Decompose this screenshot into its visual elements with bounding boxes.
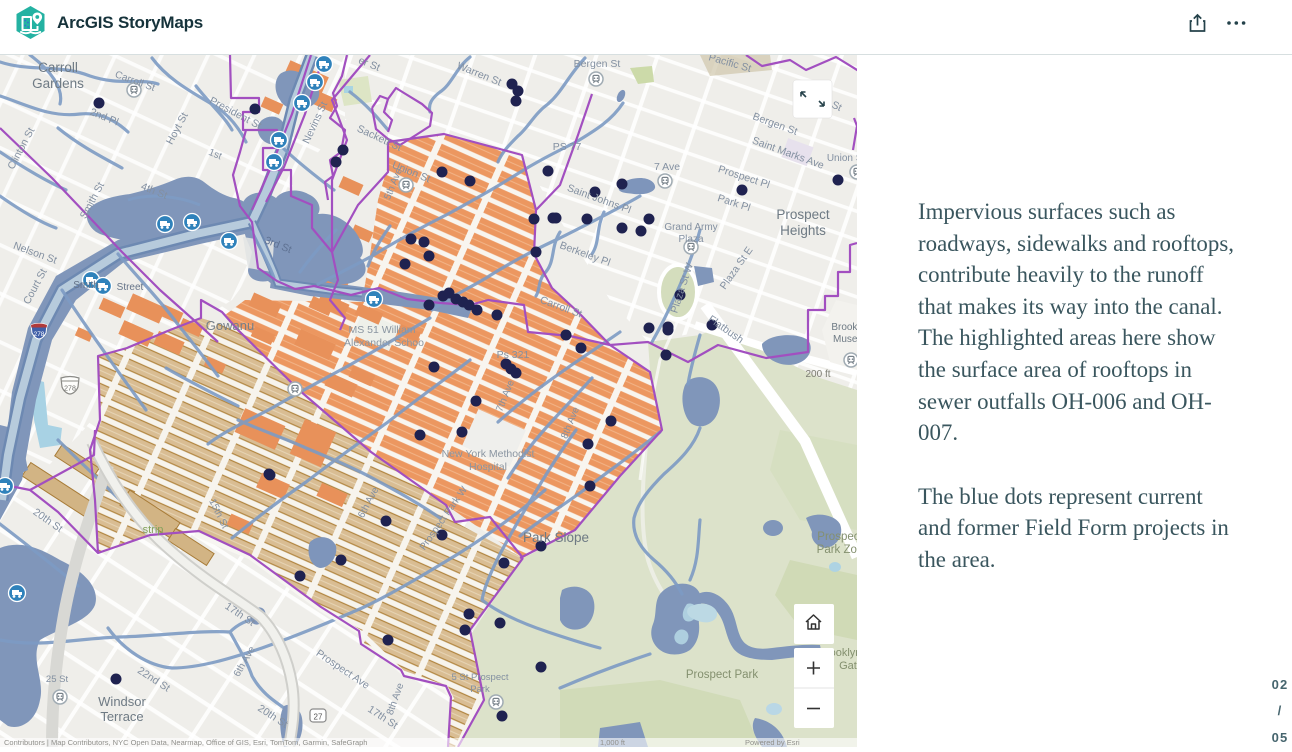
- svg-text:Prospect Park: Prospect Park: [686, 669, 758, 681]
- svg-text:Hospital: Hospital: [469, 461, 507, 473]
- svg-text:Street: Street: [117, 282, 144, 293]
- svg-text:Gowanu: Gowanu: [206, 318, 254, 333]
- svg-text:Brookly: Brookly: [831, 322, 857, 333]
- svg-text:Prospect: Prospect: [817, 531, 857, 543]
- svg-text:Plaza: Plaza: [678, 234, 703, 245]
- svg-text:Heights: Heights: [780, 223, 826, 238]
- svg-text:278: 278: [64, 386, 76, 393]
- svg-text:1,000 ft: 1,000 ft: [600, 738, 626, 747]
- svg-text:Prospect: Prospect: [776, 207, 830, 222]
- svg-text:Terrace: Terrace: [100, 709, 143, 724]
- svg-text:Bergen St: Bergen St: [574, 58, 621, 70]
- svg-text:Carroll: Carroll: [38, 60, 78, 75]
- svg-text:Union St: Union St: [827, 153, 857, 164]
- svg-text:Ps 321: Ps 321: [497, 349, 530, 361]
- svg-text:New York Methodist: New York Methodist: [442, 448, 535, 460]
- svg-text:PS 77: PS 77: [553, 141, 582, 153]
- svg-text:200 ft: 200 ft: [805, 369, 830, 380]
- svg-text:Park: Park: [470, 684, 490, 695]
- svg-text:Alexander Schoo: Alexander Schoo: [344, 337, 424, 349]
- svg-text:strip: strip: [143, 524, 164, 536]
- svg-text:Smith: Smith: [73, 280, 99, 291]
- svg-text:Gat: Gat: [839, 660, 857, 672]
- svg-text:Park Zoo: Park Zoo: [817, 544, 857, 556]
- svg-text:Powered by Esri: Powered by Esri: [745, 738, 800, 747]
- svg-text:Museu: Museu: [833, 334, 857, 345]
- svg-text:Park Slope: Park Slope: [523, 530, 589, 545]
- svg-text:278: 278: [34, 331, 45, 338]
- svg-text:5 St Prospect: 5 St Prospect: [451, 672, 508, 683]
- svg-text:Grand Army: Grand Army: [664, 222, 717, 233]
- svg-text:Gardens: Gardens: [32, 76, 84, 91]
- svg-text:27: 27: [314, 713, 323, 722]
- svg-text:MS 51 William: MS 51 William: [348, 324, 415, 336]
- svg-text:7 Ave: 7 Ave: [654, 161, 680, 173]
- svg-text:25 St: 25 St: [46, 674, 69, 685]
- svg-text:Contributors | Map Contributor: Contributors | Map Contributors, NYC Ope…: [4, 738, 367, 747]
- svg-text:Windsor: Windsor: [98, 694, 146, 709]
